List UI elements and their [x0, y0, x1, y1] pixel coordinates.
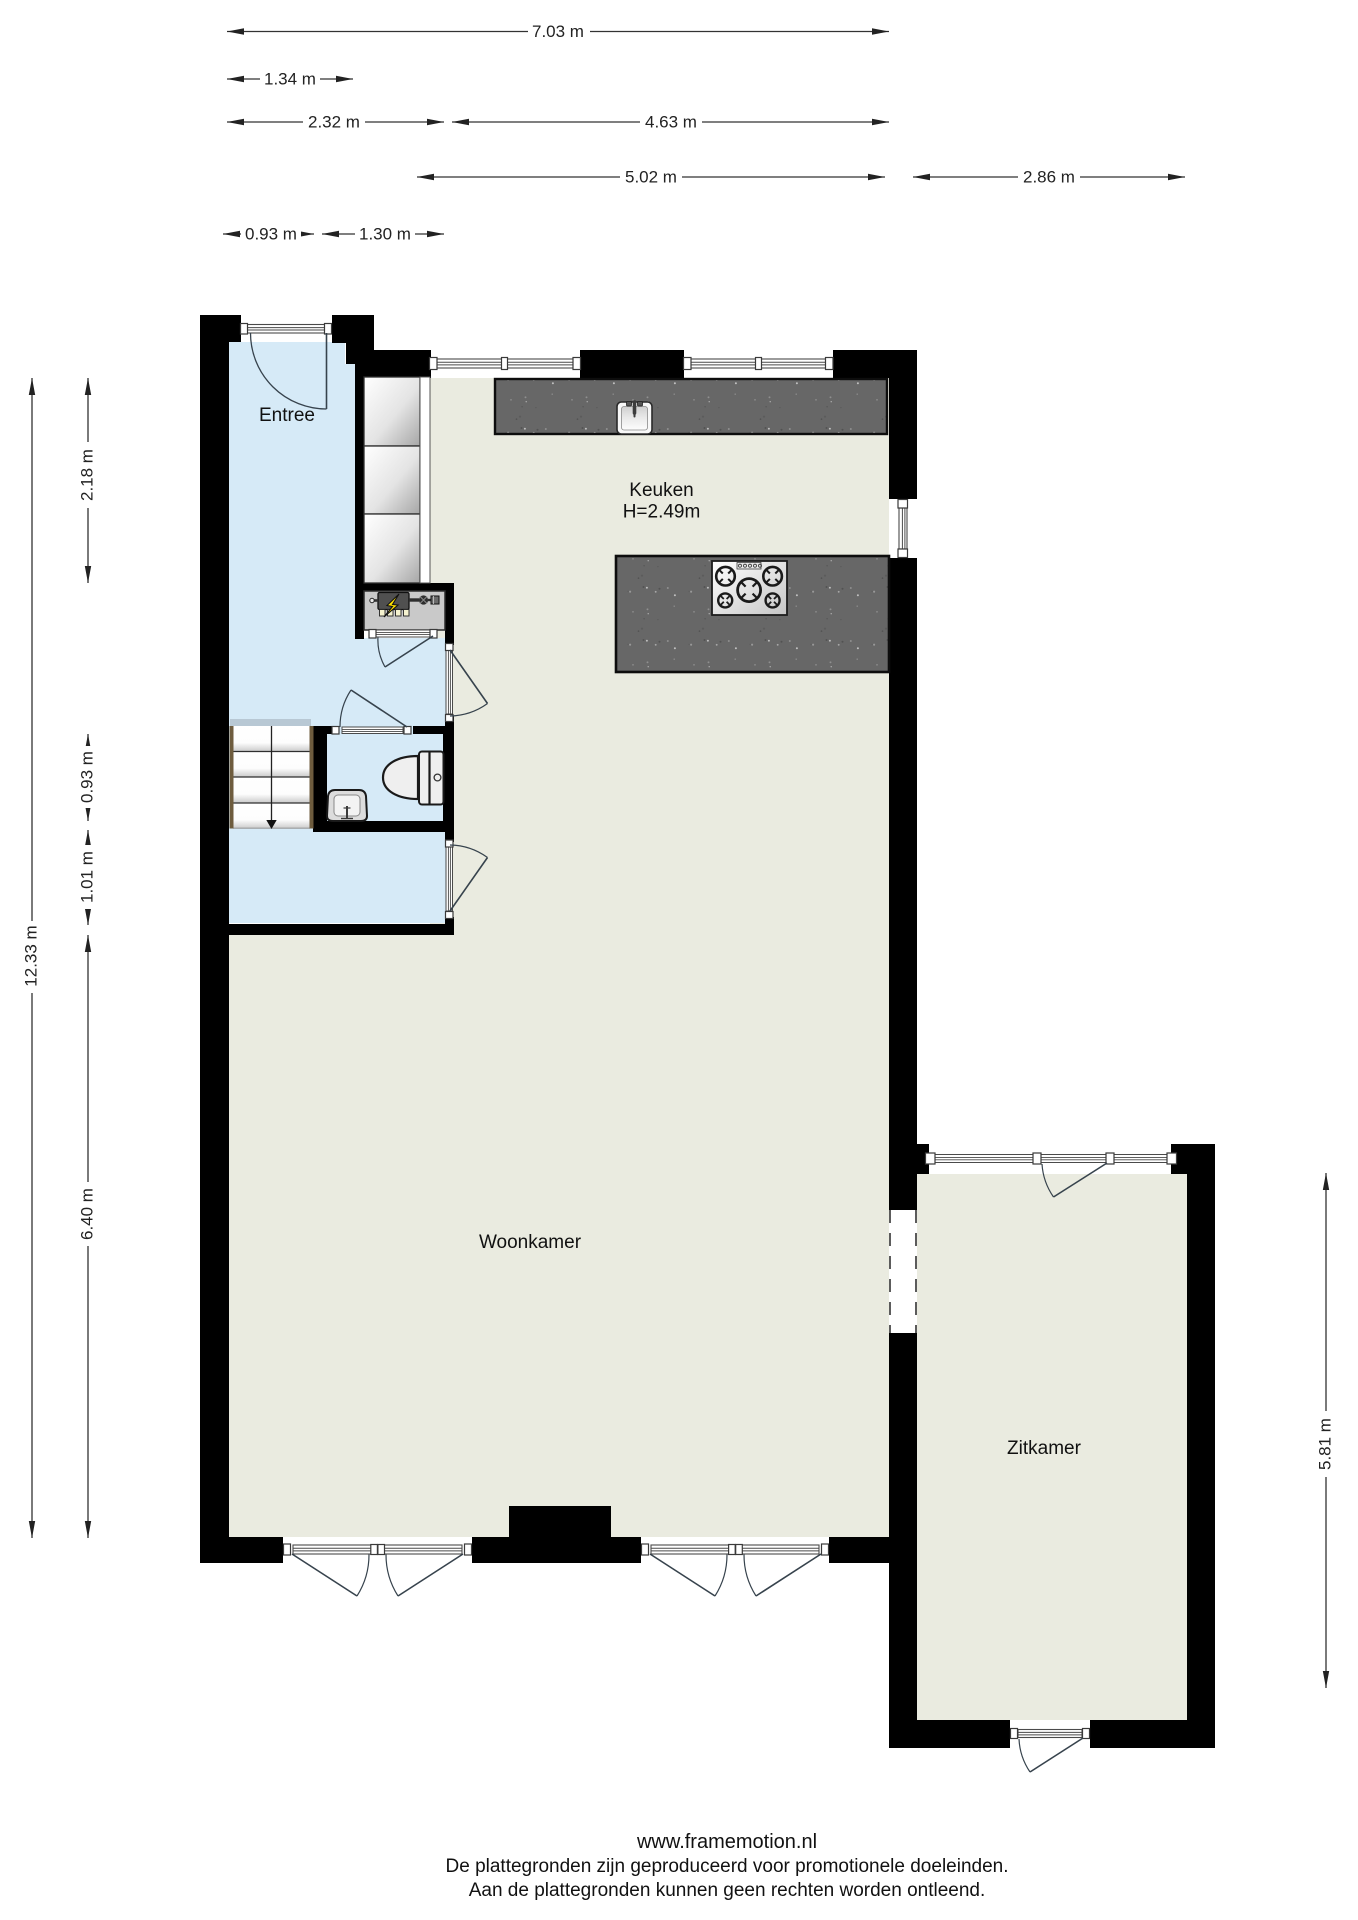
- svg-text:2.86 m: 2.86 m: [1023, 168, 1075, 187]
- svg-text:1.01 m: 1.01 m: [77, 851, 96, 903]
- svg-text:0.93 m: 0.93 m: [245, 225, 297, 244]
- svg-text:www.framemotion.nl: www.framemotion.nl: [636, 1831, 817, 1853]
- svg-text:1.30 m: 1.30 m: [359, 225, 411, 244]
- svg-text:Woonkamer: Woonkamer: [479, 1232, 582, 1253]
- svg-text:Aan de plattegronden kunnen ge: Aan de plattegronden kunnen geen rechten…: [469, 1880, 986, 1901]
- svg-text:H=2.49m: H=2.49m: [623, 502, 701, 523]
- svg-text:De plattegronden zijn geproduc: De plattegronden zijn geproduceerd voor …: [446, 1856, 1009, 1877]
- svg-text:Keuken: Keuken: [629, 480, 693, 501]
- svg-text:4.63 m: 4.63 m: [645, 113, 697, 132]
- svg-text:1.34 m: 1.34 m: [264, 70, 316, 89]
- svg-text:Entree: Entree: [259, 405, 315, 426]
- svg-text:7.03 m: 7.03 m: [532, 22, 584, 41]
- svg-text:6.40 m: 6.40 m: [77, 1188, 96, 1240]
- svg-text:5.81 m: 5.81 m: [1315, 1418, 1334, 1470]
- svg-text:12.33 m: 12.33 m: [21, 925, 40, 986]
- svg-text:Zitkamer: Zitkamer: [1007, 1438, 1082, 1459]
- svg-text:5.02 m: 5.02 m: [625, 168, 677, 187]
- svg-text:2.18 m: 2.18 m: [77, 449, 96, 501]
- svg-text:0.93 m: 0.93 m: [77, 751, 96, 803]
- svg-text:2.32 m: 2.32 m: [308, 113, 360, 132]
